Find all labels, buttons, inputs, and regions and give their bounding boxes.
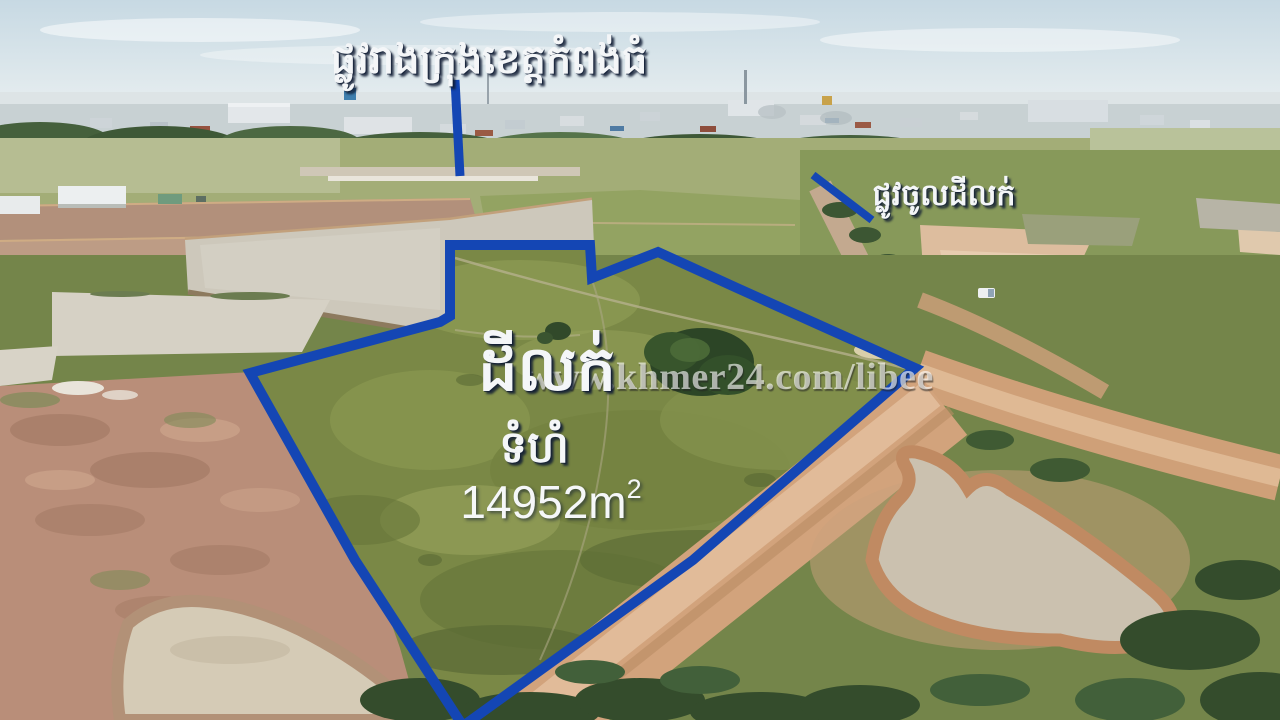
area-number: 14952m [460,476,626,528]
pickup-truck [978,288,995,298]
entrance-road-label: ផ្លូវចូលដីលក់ [873,176,1016,220]
plot-area-value: 14952m2 [460,474,641,529]
top-road-label: ផ្លូវរាងក្រុងខេត្តកំពង់ធំ [331,34,648,93]
plot-title: ដីលក់ [478,330,616,421]
right-pond-grey [1196,198,1280,232]
right-pond-green [1022,214,1140,246]
top-road-marker-line [455,80,460,176]
area-superscript: 2 [627,474,642,504]
land-listing-image: www.khmer24.com/libee ផ្លូវរាងក្រុងខេត្ត… [0,0,1280,720]
